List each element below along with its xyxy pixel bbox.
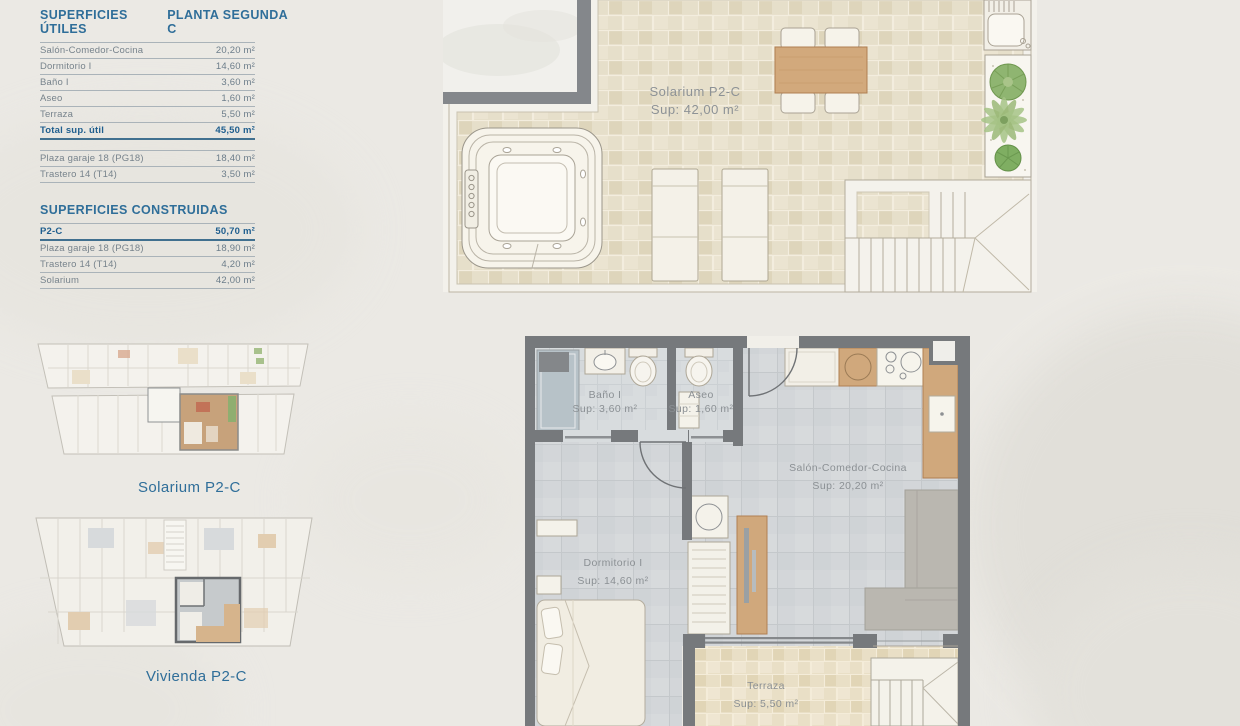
row-value: 18,90 m² [216, 243, 255, 254]
toilet [685, 348, 713, 386]
row-label: Plaza garaje 18 (PG18) [40, 243, 144, 254]
table-row: Aseo1,60 m² [40, 91, 255, 107]
row-value: 50,70 m² [215, 226, 255, 237]
room-sup: Sup: 14,60 m² [577, 575, 648, 587]
row-label: Baño I [40, 77, 69, 88]
row-label: Aseo [40, 93, 62, 104]
building-outline [36, 518, 312, 646]
row-label: Plaza garaje 18 (PG18) [40, 153, 144, 164]
row-label: Terraza [40, 109, 73, 120]
jacuzzi [462, 128, 602, 268]
row-value: 1,60 m² [221, 93, 255, 104]
table-row: Terraza5,50 m² [40, 107, 255, 123]
table-row: Trastero 14 (T14)4,20 m² [40, 257, 255, 273]
room-sup: Sup: 42,00 m² [651, 102, 739, 117]
room-name: Solarium P2-C [649, 84, 740, 99]
room-sup: Sup: 20,20 m² [812, 480, 883, 492]
row-value: 3,50 m² [221, 169, 255, 180]
room-name: Dormitorio I [583, 557, 642, 569]
bed [537, 600, 645, 726]
planta-title: PLANTA SEGUNDA C [167, 8, 290, 36]
row-label: Dormitorio I [40, 61, 92, 72]
tv-wood-panel [737, 516, 767, 634]
planter [981, 55, 1031, 177]
solarium-key-plan [28, 330, 320, 472]
row-label: P2-C [40, 226, 62, 237]
row-label: Salón-Comedor-Cocina [40, 45, 143, 56]
highlighted-vivienda-unit [176, 578, 240, 642]
room-name: Terraza [747, 680, 785, 692]
stair-core [148, 388, 180, 422]
row-label: Solarium [40, 275, 79, 286]
watercolor-blob [300, 420, 520, 580]
wardrobe [688, 542, 730, 634]
utiles-title: SUPERFICIES ÚTILES [40, 8, 167, 36]
vivienda-thumb-label: Vivienda P2-C [146, 668, 247, 685]
desk [537, 520, 577, 536]
shower [537, 350, 579, 432]
room-sup: Sup: 5,50 m² [734, 698, 799, 710]
room-name: Aseo [688, 389, 714, 401]
table-row: Solarium42,00 m² [40, 273, 255, 289]
surface-tables-panel: SUPERFICIES ÚTILES PLANTA SEGUNDA C Saló… [40, 8, 290, 289]
roof-void [443, 0, 583, 92]
row-value: 3,60 m² [221, 77, 255, 88]
terrace-stairs [871, 658, 958, 726]
utiles-table: Salón-Comedor-Cocina20,20 m² Dormitorio … [40, 42, 255, 183]
table-row: Dormitorio I14,60 m² [40, 59, 255, 75]
round-bush [995, 145, 1021, 171]
table-row: Plaza garaje 18 (PG18)18,40 m² [40, 150, 255, 167]
nightstand [537, 576, 561, 594]
solarium-floor-plan: Solarium P2-C Sup: 42,00 m² [443, 0, 1037, 305]
vivienda-floor-plan: Baño I Sup: 3,60 m² Aseo Sup: 1,60 m² Sa… [525, 336, 970, 726]
solarium-thumb-label: Solarium P2-C [138, 479, 241, 496]
toilet [629, 348, 657, 386]
stairwell [845, 180, 1031, 292]
table-row: Salón-Comedor-Cocina20,20 m² [40, 43, 255, 59]
room-name: Baño I [589, 389, 622, 401]
table-total-row: Total sup. útil45,50 m² [40, 123, 255, 140]
table-row: Plaza garaje 18 (PG18)18,90 m² [40, 241, 255, 257]
row-value: 42,00 m² [216, 275, 255, 286]
row-value: 14,60 m² [216, 61, 255, 72]
outdoor-sink-counter [984, 0, 1031, 50]
room-sup: Sup: 3,60 m² [573, 403, 638, 415]
washer-column [690, 496, 728, 538]
row-value: 4,20 m² [221, 259, 255, 270]
construidas-heading: SUPERFICIES CONSTRUIDAS [40, 203, 290, 217]
room-name: Salón-Comedor-Cocina [789, 462, 907, 474]
row-value: 18,40 m² [216, 153, 255, 164]
row-label: Trastero 14 (T14) [40, 169, 117, 180]
table-row: Baño I3,60 m² [40, 75, 255, 91]
vivienda-key-plan [28, 512, 320, 662]
room-sup: Sup: 1,60 m² [669, 403, 734, 415]
row-value: 45,50 m² [215, 125, 255, 136]
highlighted-solarium-unit [180, 394, 238, 450]
construidas-title: SUPERFICIES CONSTRUIDAS [40, 203, 228, 217]
bathroom-sink [585, 348, 625, 374]
construidas-table: P2-C50,70 m² Plaza garaje 18 (PG18)18,90… [40, 223, 255, 289]
table-row: P2-C50,70 m² [40, 224, 255, 241]
panel-heading: SUPERFICIES ÚTILES PLANTA SEGUNDA C [40, 8, 290, 36]
service-notch [931, 339, 957, 363]
row-label: Trastero 14 (T14) [40, 259, 117, 270]
row-label: Total sup. útil [40, 125, 104, 136]
brochure-page: SUPERFICIES ÚTILES PLANTA SEGUNDA C Saló… [0, 0, 1240, 726]
round-tree [990, 64, 1026, 100]
row-value: 5,50 m² [221, 109, 255, 120]
row-value: 20,20 m² [216, 45, 255, 56]
table-row: Trastero 14 (T14)3,50 m² [40, 167, 255, 183]
